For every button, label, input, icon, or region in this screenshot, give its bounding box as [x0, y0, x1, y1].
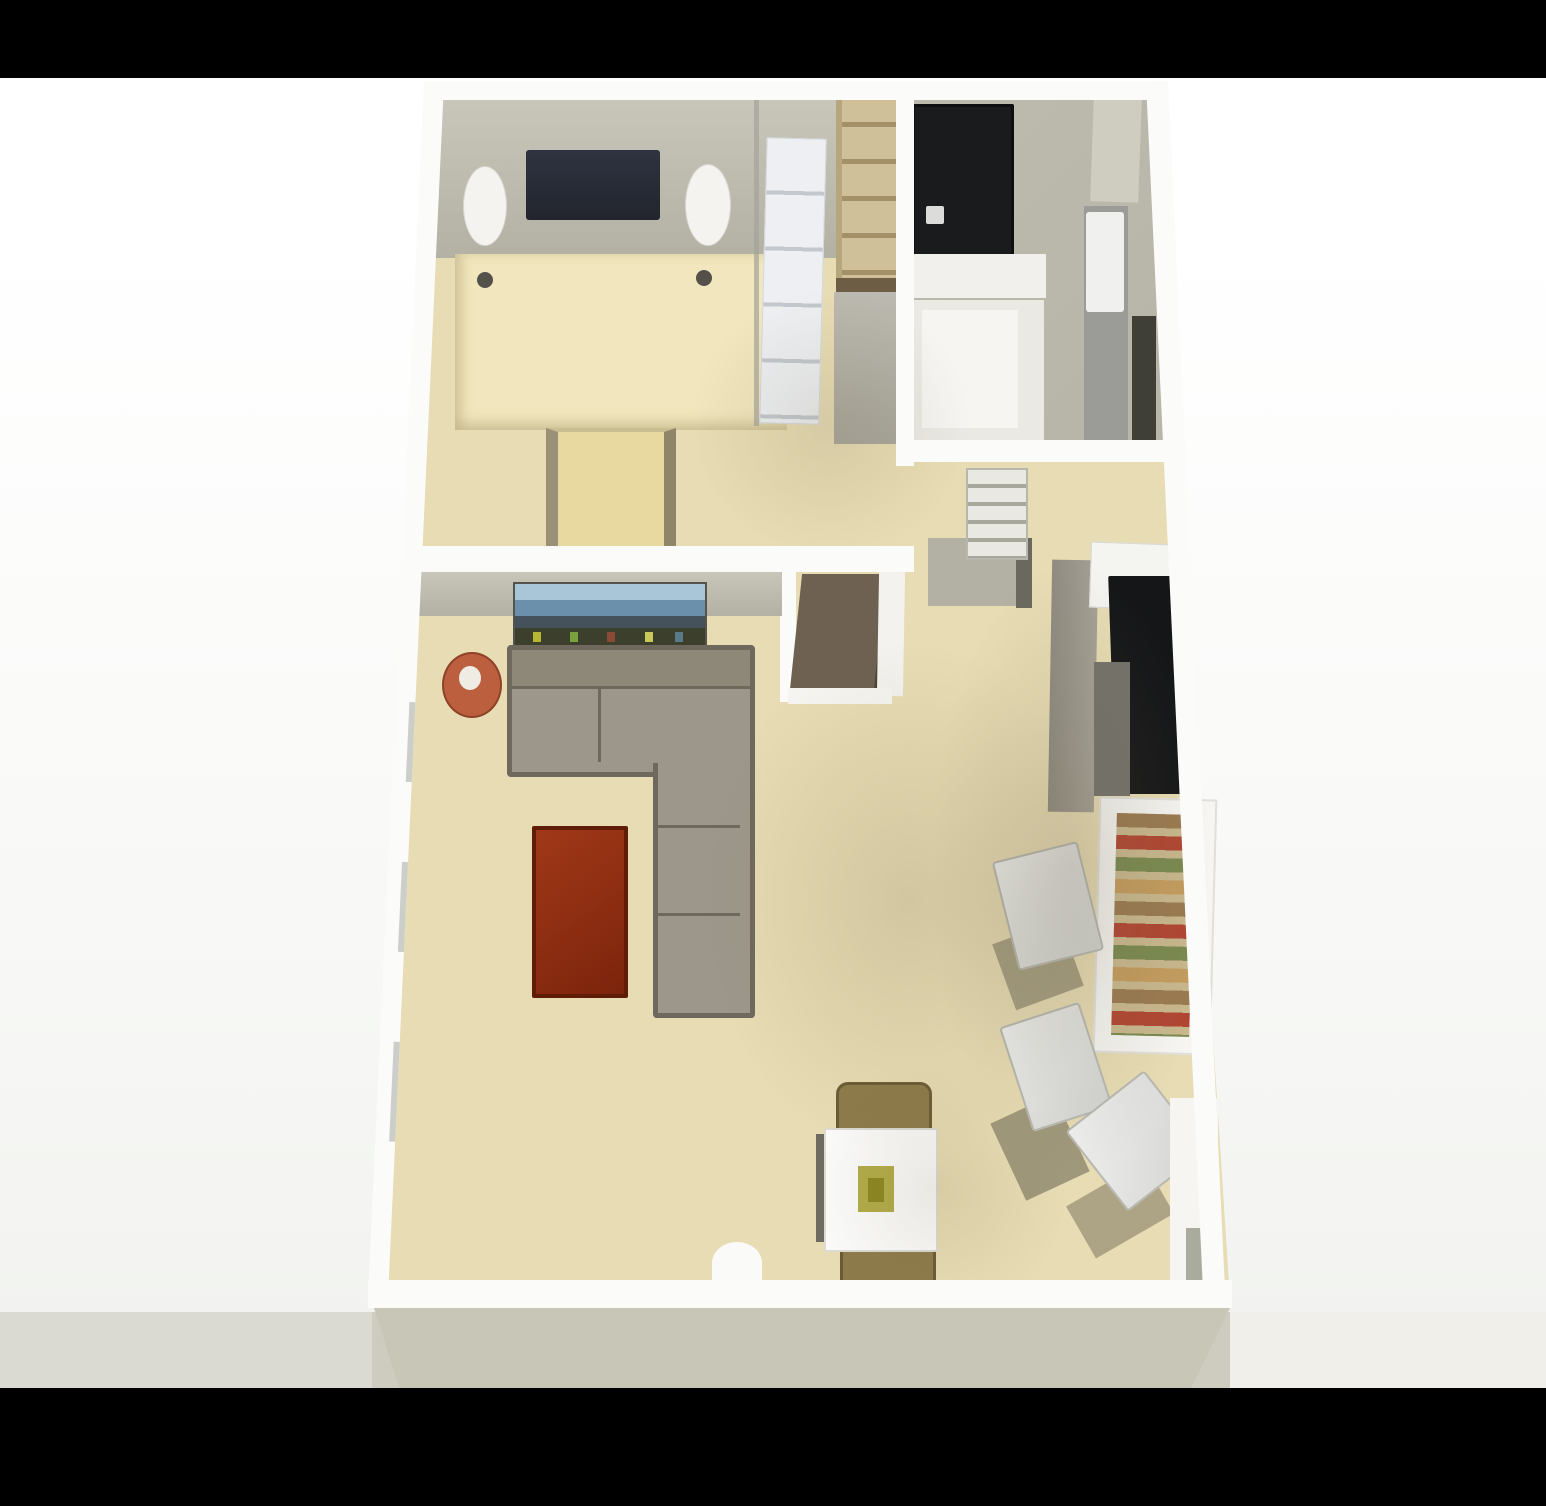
- tv-console: [513, 582, 707, 652]
- console-item-icon: [675, 632, 683, 642]
- bed-headboard: [526, 150, 660, 220]
- tv-screen-sea: [515, 600, 705, 616]
- bathroom-door-light: [1090, 97, 1142, 203]
- table-centerpiece-core: [868, 1178, 884, 1202]
- closet-wardrobe-panel: [834, 292, 896, 444]
- sofa-horizontal-section: [507, 645, 755, 777]
- kitchen-appliance-gray: [1094, 662, 1130, 796]
- bed: [455, 254, 787, 430]
- closet-divider: [754, 96, 759, 426]
- sofa-cushion-seam: [598, 689, 601, 762]
- wall-top: [424, 82, 1168, 100]
- red-side-table-top: [459, 666, 481, 690]
- background-strip-right: [1230, 1312, 1546, 1388]
- dining-table: [824, 1128, 938, 1252]
- nightstand-left: [463, 166, 507, 246]
- bed-pillow-right: [696, 270, 712, 286]
- wall-bathroom-hall: [896, 440, 1172, 462]
- bathroom-counter: [914, 254, 1046, 298]
- closet-ladder-shelf: [836, 90, 902, 282]
- shower-drain: [926, 206, 944, 224]
- closet-shelf-tower: [759, 137, 826, 424]
- table-centerpiece: [858, 1166, 894, 1212]
- console-item-icon: [570, 632, 578, 642]
- tv-screen-sky: [515, 584, 705, 600]
- floorplan-photo-viewer: [0, 0, 1546, 1506]
- nightstand-right: [685, 164, 731, 246]
- nook-door-frame: [877, 572, 905, 696]
- bathroom-dark-cabinet: [1132, 316, 1156, 448]
- bedroom-headboard-wall-face: [434, 96, 904, 258]
- sofa-cushion-seam: [658, 825, 740, 828]
- bottom-wall-threshold: [712, 1242, 762, 1284]
- coffee-table: [532, 826, 628, 998]
- console-item-icon: [607, 632, 615, 642]
- background-strip-left: [0, 1312, 372, 1388]
- red-side-table: [442, 652, 502, 718]
- console-item-icon: [645, 632, 653, 642]
- wall-bottom: [368, 1280, 1232, 1308]
- bathroom-vanity-top: [922, 310, 1018, 428]
- sofa-chaise-section: [653, 763, 755, 1018]
- hallway-paneled-door: [966, 468, 1028, 560]
- tv-console-shelf: [515, 628, 705, 646]
- shower: [912, 104, 1014, 258]
- bed-pillow-left: [477, 272, 493, 288]
- sofa-back-cushions: [512, 650, 750, 689]
- letterbox-bottom-bar: [0, 1388, 1546, 1506]
- nook-sill: [788, 688, 892, 704]
- letterbox-top-bar: [0, 0, 1546, 78]
- tv-screen-dark: [515, 616, 705, 628]
- wall-bedroom-living: [402, 546, 914, 572]
- toilet-tank: [1086, 212, 1124, 312]
- sofa-cushion-seam: [658, 913, 740, 916]
- bed-bench: [546, 428, 676, 556]
- console-item-icon: [533, 632, 541, 642]
- wall-bedroom-bathroom: [896, 88, 914, 466]
